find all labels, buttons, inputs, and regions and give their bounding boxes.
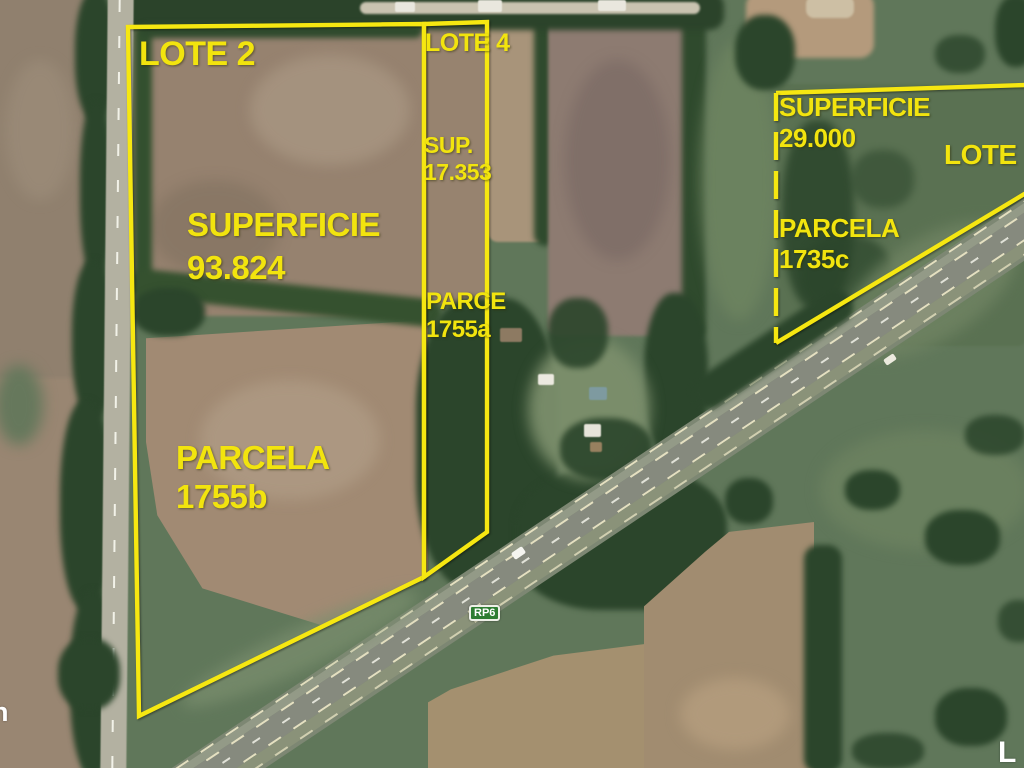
watermark-fragment-right: L — [998, 736, 1016, 768]
route-badge-rp6: RP6 — [469, 605, 500, 621]
lote2-area-label: SUPERFICIE93.824 — [187, 203, 380, 289]
lote2-parcel-label: PARCELA1755b — [176, 438, 330, 516]
lote4-name-label: LOTE 4 — [425, 29, 510, 59]
lote4-area-label: SUP.17.353 — [424, 132, 491, 186]
lote2-name-label: LOTE 2 — [139, 34, 255, 74]
satellite-map: LOTE 2 SUPERFICIE93.824 PARCELA1755b LOT… — [0, 0, 1024, 768]
lote2-boundary — [128, 24, 424, 716]
lote4-parcel-label: PARCE1755a — [426, 288, 506, 344]
lote7-area-label: SUPERFICIE29.000 — [779, 92, 930, 154]
lote7-parcel-label: PARCELA1735c — [779, 213, 899, 275]
lote7-name-label: LOTE 7 — [944, 138, 1024, 171]
watermark-fragment-left: n — [0, 697, 9, 728]
